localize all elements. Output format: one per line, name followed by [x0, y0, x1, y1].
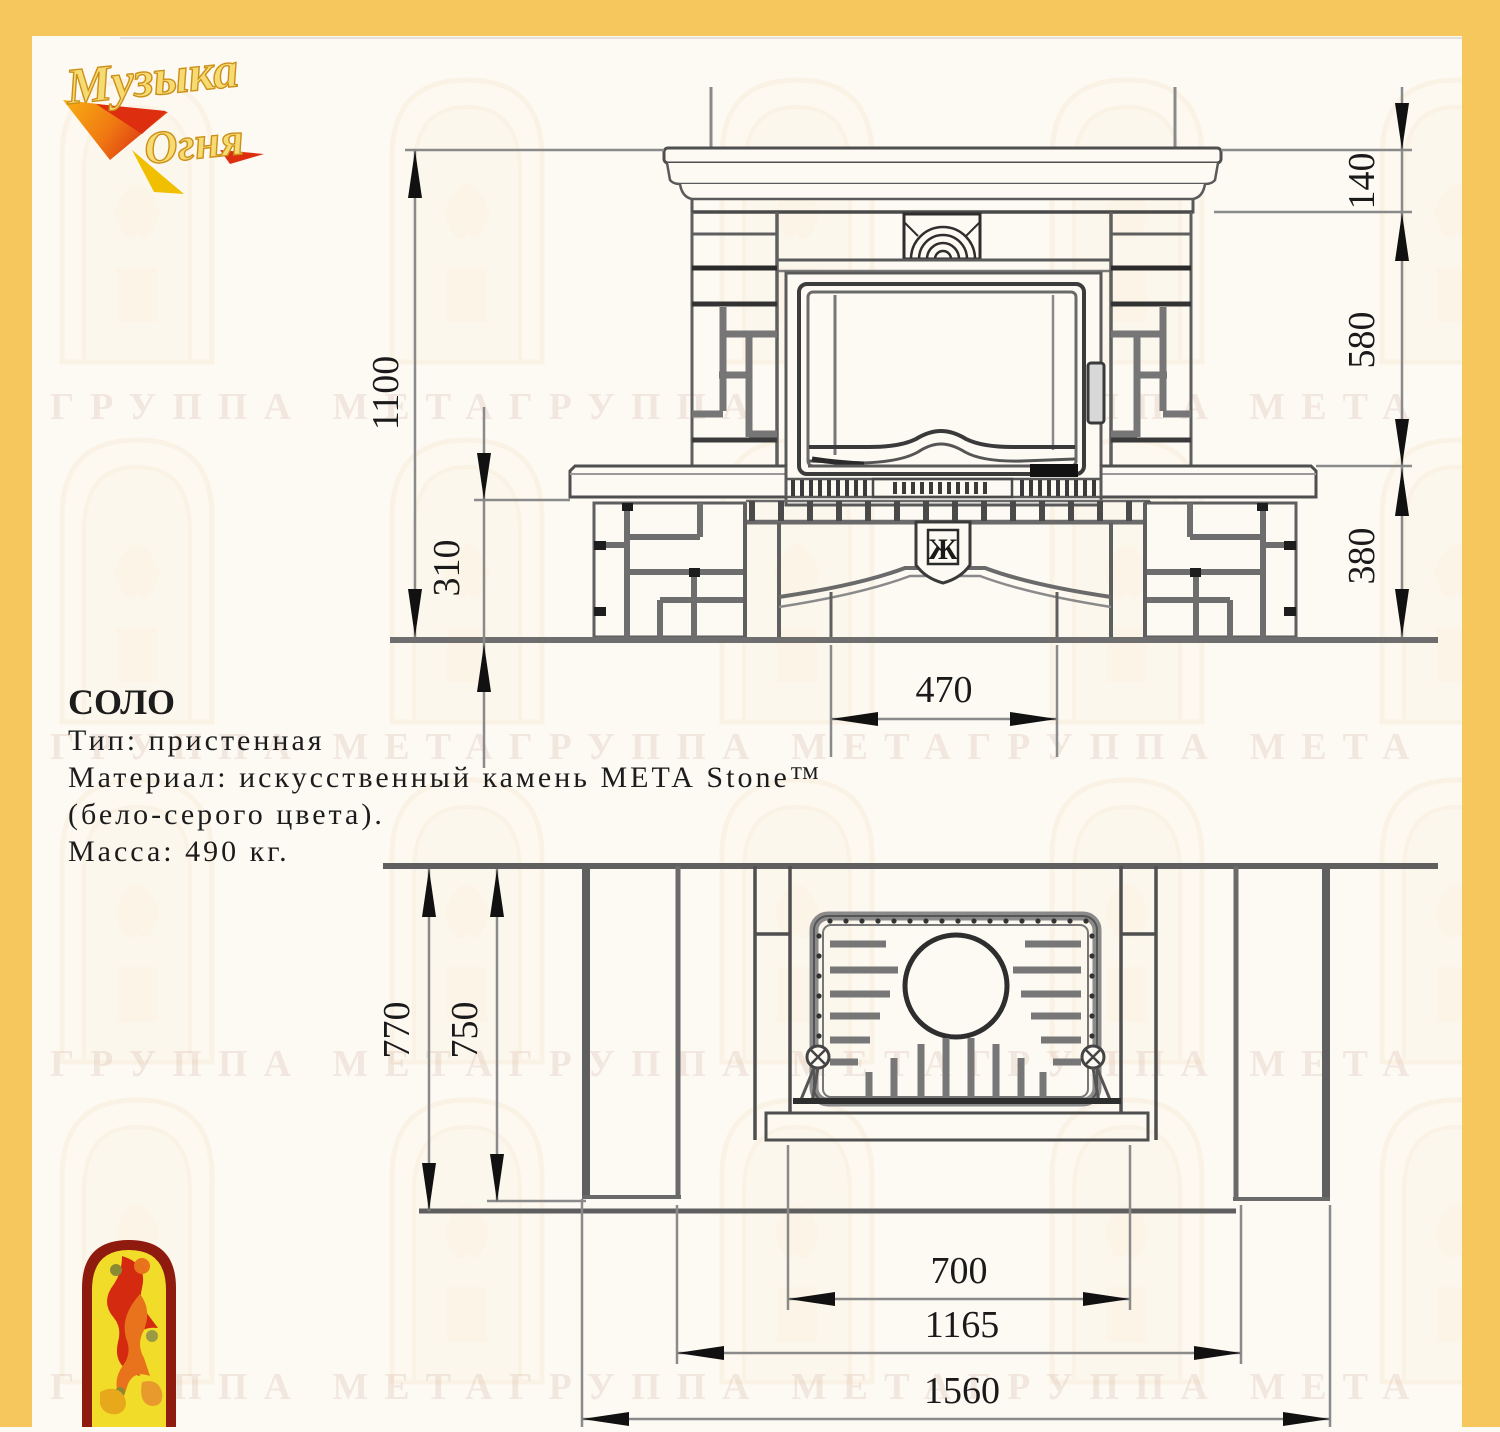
svg-text:750: 750 — [444, 1002, 486, 1059]
svg-text:Огня: Огня — [142, 113, 246, 174]
svg-text:1165: 1165 — [925, 1304, 1000, 1346]
svg-text:1560: 1560 — [924, 1370, 1000, 1412]
svg-text:310: 310 — [426, 540, 468, 597]
svg-text:380: 380 — [1341, 528, 1383, 585]
svg-text:Музыка: Музыка — [62, 42, 241, 116]
svg-text:580: 580 — [1341, 312, 1383, 369]
svg-text:1100: 1100 — [365, 356, 407, 431]
svg-text:Ж: Ж — [928, 533, 958, 566]
svg-text:770: 770 — [376, 1002, 418, 1059]
svg-text:140: 140 — [1341, 153, 1383, 210]
svg-text:700: 700 — [931, 1250, 988, 1292]
svg-text:470: 470 — [916, 669, 973, 711]
